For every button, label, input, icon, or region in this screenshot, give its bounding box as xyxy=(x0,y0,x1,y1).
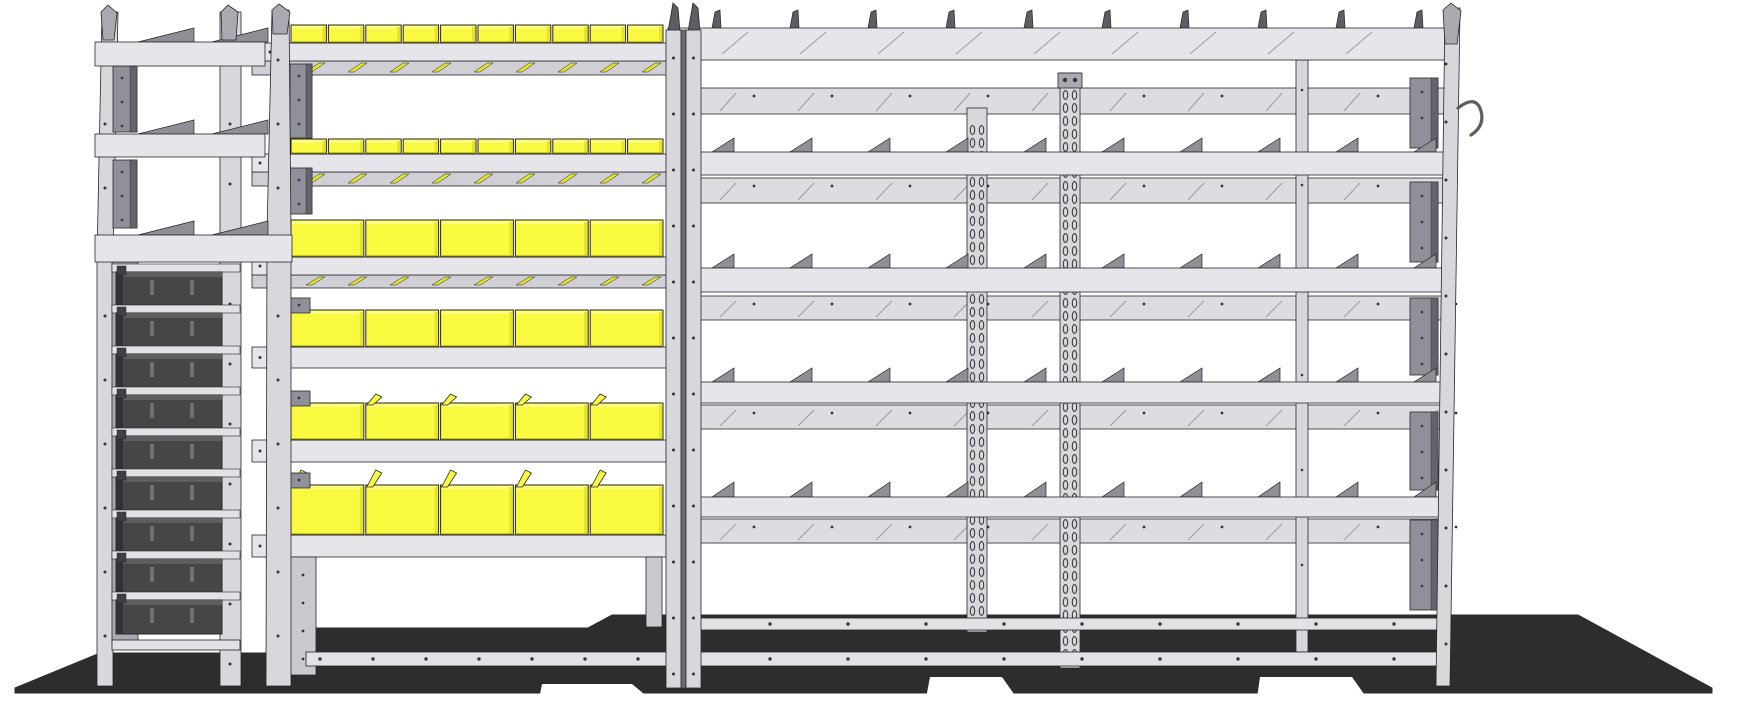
divider-clip xyxy=(790,254,812,268)
bin-rail-clip xyxy=(117,348,126,357)
bin-side-shade xyxy=(584,27,587,41)
bin-rail-clip xyxy=(117,307,126,316)
rivet-dot xyxy=(1377,303,1380,306)
rivet-dot xyxy=(692,449,695,452)
rivet-dot xyxy=(298,99,301,102)
rivet-dot xyxy=(1002,622,1005,625)
rivet-dot xyxy=(1377,185,1380,188)
bin-top-highlight xyxy=(292,26,325,29)
yellow-storage-bin xyxy=(515,403,588,440)
post-gusset-shade xyxy=(306,168,312,214)
bin-side-shade xyxy=(509,27,512,41)
shelf-band xyxy=(252,347,668,368)
rivet-dot xyxy=(909,526,912,529)
rivet-dot xyxy=(229,663,232,666)
rivet-dot xyxy=(831,526,834,529)
shelving-scene-svg xyxy=(0,0,1755,707)
rivet-dot xyxy=(302,630,305,633)
back-shelf-band xyxy=(668,519,1448,543)
bin-shelf-rail xyxy=(112,428,240,436)
rivet-dot xyxy=(104,571,107,574)
yellow-storage-bin xyxy=(291,220,364,257)
bin-top-highlight xyxy=(554,26,587,29)
rivet-dot xyxy=(1445,237,1448,240)
bin-top-highlight xyxy=(442,404,513,407)
rivet-dot xyxy=(692,57,695,60)
rivet-dot xyxy=(909,303,912,306)
bin-side-shade xyxy=(116,559,123,593)
rivet-dot xyxy=(1421,117,1424,120)
base-rail xyxy=(306,652,668,666)
bin-side-shade xyxy=(116,354,123,388)
rivet-dot xyxy=(1002,657,1005,660)
bin-side-shade xyxy=(116,395,123,429)
bin-side-shade xyxy=(116,600,123,634)
bottom-rail xyxy=(112,640,240,650)
divider-clip xyxy=(712,138,734,152)
divider-clip xyxy=(1102,10,1111,28)
bin-shelf-rail xyxy=(112,305,240,313)
bin-top-highlight xyxy=(516,486,587,489)
shelf-band xyxy=(252,43,668,61)
bin-side-shade xyxy=(659,141,662,152)
back-shelf-band xyxy=(668,178,1448,203)
bin-side-shade xyxy=(659,222,662,255)
rivet-dot xyxy=(298,203,301,206)
rivet-dot xyxy=(753,526,756,529)
rivet-dot xyxy=(424,657,427,660)
bin-top-lip xyxy=(116,354,222,359)
bin-side-shade xyxy=(659,405,662,438)
front-shelf-band xyxy=(668,382,1448,403)
yellow-storage-bin xyxy=(441,403,514,440)
rivet-dot xyxy=(831,412,834,415)
rivet-dot xyxy=(1221,95,1224,98)
bin-top-lip xyxy=(116,559,222,564)
bin-side-shade xyxy=(435,405,438,438)
divider-clip xyxy=(1102,368,1124,382)
rivet-dot xyxy=(987,95,990,98)
rivet-dot xyxy=(753,412,756,415)
post-top-spike xyxy=(688,3,700,32)
bin-handle-slot xyxy=(190,403,194,418)
yellow-storage-bin xyxy=(441,310,514,347)
bin-side-shade xyxy=(435,222,438,255)
mounting-hook-icon xyxy=(1458,102,1482,135)
rivet-dot xyxy=(672,281,675,284)
back-shelf-band xyxy=(668,296,1448,320)
bin-top-lip xyxy=(116,600,222,605)
rivet-dot xyxy=(1392,657,1395,660)
bin-top-highlight xyxy=(442,221,513,224)
shelf-band xyxy=(95,42,265,66)
rivet-dot xyxy=(121,101,124,104)
rivet-dot xyxy=(259,356,262,359)
rivet-dot xyxy=(1421,363,1424,366)
bin-top-highlight xyxy=(516,404,587,407)
rivet-dot xyxy=(1455,412,1458,415)
rivet-dot xyxy=(1221,303,1224,306)
bin-shelf-rail xyxy=(112,551,240,559)
middle-left-upright-post xyxy=(266,10,291,686)
rivet-dot xyxy=(104,123,107,126)
rivet-dot xyxy=(1063,78,1067,82)
divider-clip xyxy=(1258,254,1280,268)
bin-side-shade xyxy=(116,313,123,347)
wheel-arch-notch xyxy=(918,677,1014,707)
bin-label-tab xyxy=(367,470,382,487)
bin-top-highlight xyxy=(442,26,475,29)
back-shelf-band xyxy=(668,405,1448,429)
rivet-dot xyxy=(1143,412,1146,415)
yellow-storage-bin xyxy=(366,310,439,347)
bin-shelf-rail xyxy=(112,346,240,354)
rivet-dot xyxy=(1301,89,1304,92)
rivet-dot xyxy=(104,507,107,510)
rivet-dot xyxy=(121,77,124,80)
bin-rail-clip xyxy=(117,430,126,439)
bin-top-highlight xyxy=(367,486,438,489)
shelf-band xyxy=(95,134,265,157)
bin-handle-slot xyxy=(150,321,154,336)
bin-side-shade xyxy=(472,141,475,152)
rivet-dot xyxy=(924,657,927,660)
rivet-dot xyxy=(104,635,107,638)
rivet-dot xyxy=(121,195,124,198)
rivet-dot xyxy=(1445,469,1448,472)
rivet-dot xyxy=(692,673,695,676)
bin-top-lip xyxy=(116,477,222,482)
bin-side-shade xyxy=(622,27,625,41)
bin-handle-slot xyxy=(150,485,154,500)
rivet-dot xyxy=(1143,185,1146,188)
rivet-dot xyxy=(1421,425,1424,428)
rivet-dot xyxy=(1421,451,1424,454)
rivet-dot xyxy=(672,617,675,620)
rivet-dot xyxy=(277,315,280,318)
bin-label-tab xyxy=(591,470,606,487)
bin-side-shade xyxy=(584,487,587,533)
rivet-dot xyxy=(831,303,834,306)
bin-top-lip xyxy=(116,436,222,441)
rivet-dot xyxy=(1377,95,1380,98)
rivet-dot xyxy=(229,423,232,426)
rivet-dot xyxy=(692,225,695,228)
van-shelving-diagram xyxy=(0,0,1755,707)
bin-side-shade xyxy=(435,312,438,345)
bin-handle-slot xyxy=(150,444,154,459)
end-wall-panel-shade xyxy=(1431,78,1438,148)
post-gap-shadow xyxy=(681,30,686,688)
rivet-dot xyxy=(1301,184,1304,187)
divider-clip xyxy=(790,10,799,28)
bin-handle-slot xyxy=(190,280,194,295)
bin-top-highlight xyxy=(367,221,438,224)
yellow-storage-bin xyxy=(441,485,514,535)
back-shelf-band xyxy=(668,88,1448,114)
rivet-dot xyxy=(1445,527,1448,530)
bin-side-shade xyxy=(509,312,512,345)
divider-clip xyxy=(1024,482,1046,497)
rivet-dot xyxy=(768,657,771,660)
rivet-dot xyxy=(1445,411,1448,414)
rivet-dot xyxy=(753,95,756,98)
rivet-dot xyxy=(277,379,280,382)
bin-side-shade xyxy=(472,27,475,41)
rivet-dot xyxy=(1445,585,1448,588)
rivet-dot xyxy=(1158,622,1161,625)
rivet-dot xyxy=(1421,221,1424,224)
bin-top-highlight xyxy=(442,140,475,143)
divider-clip xyxy=(1336,138,1358,152)
bin-handle-slot xyxy=(190,608,194,623)
rivet-dot xyxy=(692,113,695,116)
rivet-dot xyxy=(318,657,321,660)
bin-side-shade xyxy=(360,27,363,41)
bin-handle-slot xyxy=(190,485,194,500)
bin-top-lip xyxy=(116,395,222,400)
rivet-dot xyxy=(909,412,912,415)
bin-top-highlight xyxy=(442,311,513,314)
rivet-dot xyxy=(1143,95,1146,98)
yellow-storage-bin xyxy=(590,310,663,347)
rivet-dot xyxy=(1445,643,1448,646)
bin-rail-clip xyxy=(117,512,126,521)
divider-clip xyxy=(868,138,890,152)
divider-clip xyxy=(1258,482,1280,497)
rivet-dot xyxy=(753,303,756,306)
post-gusset-shade xyxy=(306,64,312,138)
end-wall-panel-shade xyxy=(1431,412,1438,490)
yellow-storage-bin xyxy=(590,220,663,257)
bin-top-highlight xyxy=(367,140,400,143)
bin-rail-clip xyxy=(117,266,126,275)
bin-handle-slot xyxy=(150,608,154,623)
shelf-band xyxy=(252,535,668,557)
divider-clip xyxy=(712,254,734,268)
rivet-dot xyxy=(672,225,675,228)
rivet-dot xyxy=(277,187,280,190)
shelf-band xyxy=(252,440,668,462)
post-top-cap xyxy=(101,5,117,40)
bin-top-highlight xyxy=(554,140,587,143)
bin-top-highlight xyxy=(367,26,400,29)
rivet-dot xyxy=(1143,303,1146,306)
rivet-dot xyxy=(302,574,305,577)
rivet-dot xyxy=(909,95,912,98)
rivet-dot xyxy=(298,304,301,307)
bin-rail-clip xyxy=(117,471,126,480)
divider-clip xyxy=(1024,10,1033,28)
front-shelf-band xyxy=(668,497,1448,517)
shelf-band xyxy=(252,257,668,275)
bin-side-shade xyxy=(360,141,363,152)
divider-clip xyxy=(1414,10,1423,28)
bin-shelf-rail xyxy=(112,469,240,477)
rivet-dot xyxy=(1445,295,1448,298)
dark-storage-bin xyxy=(116,395,222,429)
rivet-dot xyxy=(298,75,301,78)
bin-rail-clip xyxy=(117,389,126,398)
rivet-dot xyxy=(1421,585,1424,588)
rivet-dot xyxy=(768,622,771,625)
rivet-dot xyxy=(302,602,305,605)
rivet-dot xyxy=(104,379,107,382)
rivet-dot xyxy=(121,219,124,222)
bin-top-highlight xyxy=(292,221,363,224)
bin-side-shade xyxy=(435,27,438,41)
front-shelf-band xyxy=(668,152,1448,175)
bin-handle-slot xyxy=(190,362,194,377)
rivet-dot xyxy=(1158,657,1161,660)
rivet-dot xyxy=(259,545,262,548)
rivet-dot xyxy=(1301,564,1304,567)
bin-handle-slot xyxy=(150,280,154,295)
bin-side-shade xyxy=(547,141,550,152)
divider-clip xyxy=(868,368,890,382)
left-bin-tower-unit xyxy=(95,5,292,686)
post-gusset-shade xyxy=(130,160,137,228)
rivet-dot xyxy=(121,125,124,128)
bin-top-lip xyxy=(116,518,222,523)
yellow-storage-bin xyxy=(590,403,663,440)
rivet-dot xyxy=(1421,247,1424,250)
rivet-dot xyxy=(1421,559,1424,562)
rivet-dot xyxy=(846,657,849,660)
wheel-arch-notch xyxy=(530,684,644,707)
yellow-storage-bin xyxy=(515,220,588,257)
divider-clip xyxy=(1336,10,1345,28)
bin-top-highlight xyxy=(367,311,438,314)
dark-storage-bin xyxy=(116,272,222,306)
bin-label-tab xyxy=(442,470,457,487)
rivet-dot xyxy=(298,479,301,482)
rivet-dot xyxy=(1377,526,1380,529)
rivet-dot xyxy=(104,443,107,446)
bin-side-shade xyxy=(509,222,512,255)
end-wall-panel-shade xyxy=(1431,298,1438,375)
rivet-dot xyxy=(846,622,849,625)
post-gusset-shade xyxy=(130,66,137,132)
bin-top-lip xyxy=(116,313,222,318)
dark-storage-bin xyxy=(116,477,222,511)
rivet-dot xyxy=(1236,622,1239,625)
dark-storage-bin xyxy=(116,559,222,593)
divider-clip xyxy=(1180,254,1202,268)
rivet-dot xyxy=(229,483,232,486)
bin-handle-slot xyxy=(190,444,194,459)
bin-side-shade xyxy=(509,405,512,438)
bin-top-highlight xyxy=(591,221,662,224)
divider-clip xyxy=(1180,10,1189,28)
divider-clip xyxy=(1102,138,1124,152)
rivet-dot xyxy=(1236,657,1239,660)
rivet-dot xyxy=(1445,353,1448,356)
post-top-cap xyxy=(221,5,238,40)
rivet-dot xyxy=(104,187,107,190)
rivet-dot xyxy=(583,657,586,660)
rivet-dot xyxy=(229,543,232,546)
rivet-dot xyxy=(229,123,232,126)
divider-clip xyxy=(790,368,812,382)
bin-top-highlight xyxy=(516,26,549,29)
divider-clip xyxy=(1024,254,1046,268)
rivet-dot xyxy=(121,171,124,174)
rivet-dot xyxy=(1301,374,1304,377)
rivet-dot xyxy=(692,337,695,340)
rivet-dot xyxy=(1421,337,1424,340)
rivet-dot xyxy=(672,449,675,452)
bin-top-highlight xyxy=(591,26,624,29)
rivet-dot xyxy=(1421,477,1424,480)
bin-side-shade xyxy=(659,487,662,533)
base-rail xyxy=(668,652,1448,666)
bin-rail-clip xyxy=(117,594,126,603)
dark-storage-bin xyxy=(116,354,222,388)
post-top-cap xyxy=(272,4,290,34)
bin-label-tab xyxy=(516,470,531,487)
divider-clip xyxy=(1024,138,1046,152)
rivet-dot xyxy=(1221,185,1224,188)
rivet-dot xyxy=(692,617,695,620)
bin-side-shade xyxy=(116,518,123,552)
rivet-dot xyxy=(831,95,834,98)
rivet-dot xyxy=(1421,533,1424,536)
bin-top-highlight xyxy=(629,26,662,29)
divider-clip xyxy=(946,138,968,152)
bin-side-shade xyxy=(360,487,363,533)
shelf-wedge-divider xyxy=(138,120,194,134)
divider-clip xyxy=(868,254,890,268)
right-open-shelving-unit xyxy=(668,10,1457,668)
rivet-dot xyxy=(1445,121,1448,124)
rivet-dot xyxy=(229,363,232,366)
rivet-dot xyxy=(277,443,280,446)
rivet-dot xyxy=(692,281,695,284)
bin-side-shade xyxy=(547,27,550,41)
rivet-dot xyxy=(672,505,675,508)
base-side-panel xyxy=(646,557,662,627)
shelf-wedge-divider xyxy=(138,28,194,42)
middle-yellow-bin-shelving-unit xyxy=(252,4,668,686)
slotted-upright-post xyxy=(967,108,987,632)
bin-side-shade xyxy=(659,312,662,345)
bin-handle-slot xyxy=(190,567,194,582)
bin-side-shade xyxy=(509,487,512,533)
rivet-dot xyxy=(672,337,675,340)
bin-top-highlight xyxy=(329,26,362,29)
dark-storage-bin xyxy=(116,313,222,347)
rivet-dot xyxy=(277,59,280,62)
bin-top-highlight xyxy=(516,311,587,314)
divider-clip xyxy=(1102,482,1124,497)
rivet-dot xyxy=(1445,63,1448,66)
bin-side-shade xyxy=(584,312,587,345)
bin-side-shade xyxy=(509,141,512,152)
divider-clip xyxy=(1180,368,1202,382)
front-shelf-band xyxy=(668,268,1448,292)
rivet-dot xyxy=(371,657,374,660)
divider-clip xyxy=(712,368,734,382)
yellow-storage-bin xyxy=(366,403,439,440)
divider-clip xyxy=(1102,254,1124,268)
bin-side-shade xyxy=(397,27,400,41)
rivet-dot xyxy=(277,507,280,510)
bin-handle-slot xyxy=(150,362,154,377)
center-divider-post xyxy=(666,30,681,688)
divider-clip xyxy=(712,10,721,28)
yellow-storage-bin xyxy=(515,485,588,535)
